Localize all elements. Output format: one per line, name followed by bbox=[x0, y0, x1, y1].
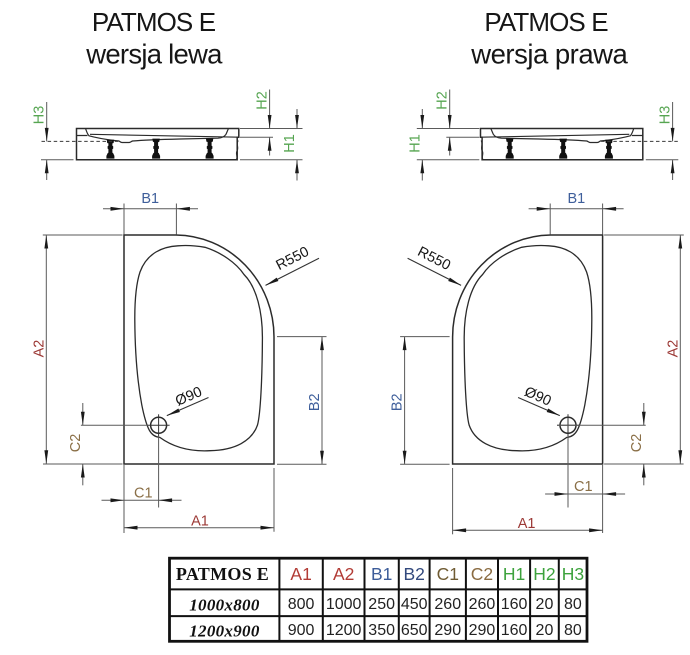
svg-text:260: 260 bbox=[434, 596, 461, 613]
svg-text:PATMOS E: PATMOS E bbox=[176, 564, 269, 584]
svg-text:H1: H1 bbox=[282, 134, 298, 153]
svg-text:20: 20 bbox=[536, 622, 554, 639]
svg-text:290: 290 bbox=[434, 622, 461, 639]
svg-text:1200x900: 1200x900 bbox=[189, 621, 260, 640]
svg-text:A1: A1 bbox=[290, 564, 311, 584]
svg-text:650: 650 bbox=[401, 622, 428, 639]
svg-text:A1: A1 bbox=[518, 516, 536, 532]
svg-text:160: 160 bbox=[501, 622, 528, 639]
svg-text:H2: H2 bbox=[255, 91, 271, 110]
svg-text:B2: B2 bbox=[390, 393, 406, 411]
svg-text:900: 900 bbox=[288, 622, 315, 639]
svg-text:A2: A2 bbox=[333, 564, 354, 584]
svg-text:C2: C2 bbox=[629, 434, 645, 453]
svg-text:C1: C1 bbox=[437, 564, 459, 584]
svg-text:80: 80 bbox=[564, 596, 582, 613]
svg-text:H1: H1 bbox=[503, 564, 525, 584]
svg-text:20: 20 bbox=[536, 596, 554, 613]
svg-text:C2: C2 bbox=[68, 434, 84, 453]
svg-text:C1: C1 bbox=[574, 479, 593, 495]
svg-text:800: 800 bbox=[288, 596, 315, 613]
svg-text:B1: B1 bbox=[371, 564, 392, 584]
svg-text:A2: A2 bbox=[31, 340, 47, 358]
svg-text:1000: 1000 bbox=[326, 596, 362, 613]
svg-text:PATMOS E: PATMOS E bbox=[92, 7, 216, 37]
svg-text:290: 290 bbox=[469, 622, 496, 639]
svg-text:wersja lewa: wersja lewa bbox=[85, 39, 223, 70]
svg-text:1000x800: 1000x800 bbox=[189, 595, 260, 614]
svg-text:80: 80 bbox=[564, 622, 582, 639]
svg-text:C2: C2 bbox=[471, 564, 493, 584]
svg-text:1200: 1200 bbox=[326, 622, 362, 639]
svg-text:160: 160 bbox=[501, 596, 528, 613]
svg-text:H3: H3 bbox=[32, 106, 48, 125]
svg-text:C1: C1 bbox=[134, 485, 153, 501]
svg-text:H3: H3 bbox=[562, 564, 584, 584]
svg-text:H1: H1 bbox=[407, 134, 423, 153]
svg-text:H2: H2 bbox=[435, 91, 451, 110]
svg-text:B1: B1 bbox=[141, 191, 159, 207]
svg-text:wersja prawa: wersja prawa bbox=[470, 39, 628, 70]
svg-text:B2: B2 bbox=[403, 564, 424, 584]
svg-text:350: 350 bbox=[368, 622, 395, 639]
svg-text:B1: B1 bbox=[568, 191, 586, 207]
svg-text:B2: B2 bbox=[307, 393, 323, 411]
svg-text:H3: H3 bbox=[658, 106, 674, 125]
svg-text:H2: H2 bbox=[533, 564, 555, 584]
svg-text:250: 250 bbox=[368, 596, 395, 613]
svg-text:A2: A2 bbox=[665, 340, 681, 358]
svg-text:A1: A1 bbox=[191, 514, 209, 530]
svg-text:450: 450 bbox=[401, 596, 428, 613]
svg-text:260: 260 bbox=[469, 596, 496, 613]
svg-text:PATMOS E: PATMOS E bbox=[484, 7, 608, 37]
